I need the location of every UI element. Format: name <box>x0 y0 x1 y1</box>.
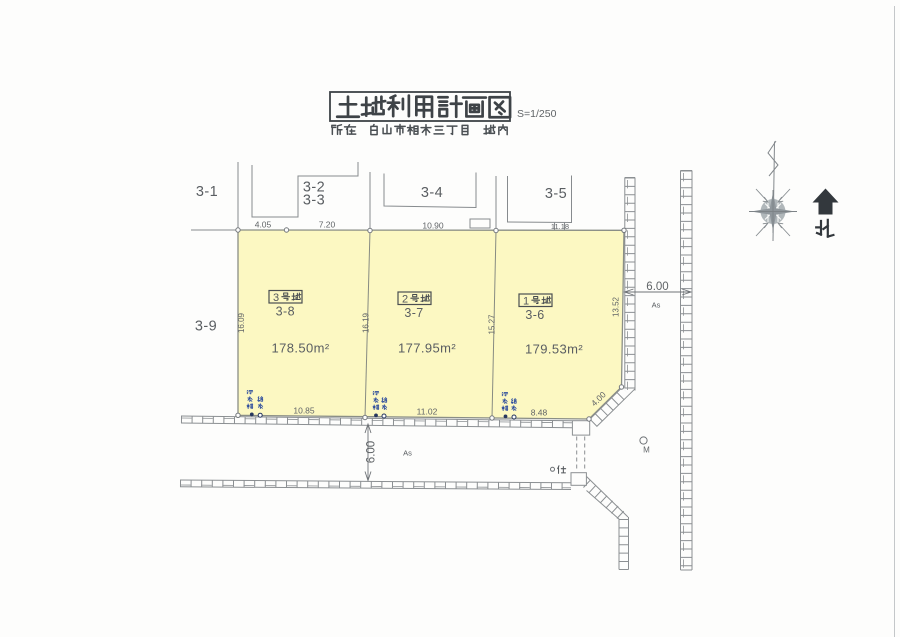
svg-text:3-3: 3-3 <box>303 193 325 209</box>
svg-text:16.09: 16.09 <box>237 312 246 333</box>
svg-text:177.95m²: 177.95m² <box>398 341 456 356</box>
svg-text:4.05: 4.05 <box>255 220 272 230</box>
svg-text:3-1: 3-1 <box>196 184 218 200</box>
svg-text:S=1/250: S=1/250 <box>517 108 557 120</box>
svg-text:179.53m²: 179.53m² <box>525 342 583 357</box>
svg-text:3-5: 3-5 <box>545 186 567 202</box>
svg-text:2: 2 <box>402 293 408 305</box>
svg-text:15.27: 15.27 <box>488 314 497 335</box>
svg-text:1: 1 <box>523 295 529 307</box>
svg-text:8.48: 8.48 <box>531 408 548 418</box>
svg-text:178.50m²: 178.50m² <box>271 341 329 356</box>
svg-text:3-8: 3-8 <box>276 305 295 319</box>
svg-text:3: 3 <box>273 292 279 304</box>
svg-text:10.85: 10.85 <box>293 406 315 416</box>
svg-text:6.00: 6.00 <box>366 441 378 463</box>
svg-text:As: As <box>652 301 661 310</box>
svg-text:16.19: 16.19 <box>362 312 371 333</box>
svg-text:3-4: 3-4 <box>421 185 443 201</box>
svg-text:3-6: 3-6 <box>525 308 544 322</box>
svg-text:3-9: 3-9 <box>195 319 217 335</box>
svg-text:7.20: 7.20 <box>319 220 336 230</box>
svg-text:3-7: 3-7 <box>404 306 423 320</box>
svg-text:As: As <box>403 449 412 458</box>
svg-text:11.18: 11.18 <box>551 222 569 231</box>
svg-text:M: M <box>643 446 650 455</box>
svg-text:13.52: 13.52 <box>612 296 621 317</box>
svg-text:6.00: 6.00 <box>646 281 668 293</box>
svg-text:11.02: 11.02 <box>417 407 438 417</box>
svg-text:10.90: 10.90 <box>422 221 444 231</box>
